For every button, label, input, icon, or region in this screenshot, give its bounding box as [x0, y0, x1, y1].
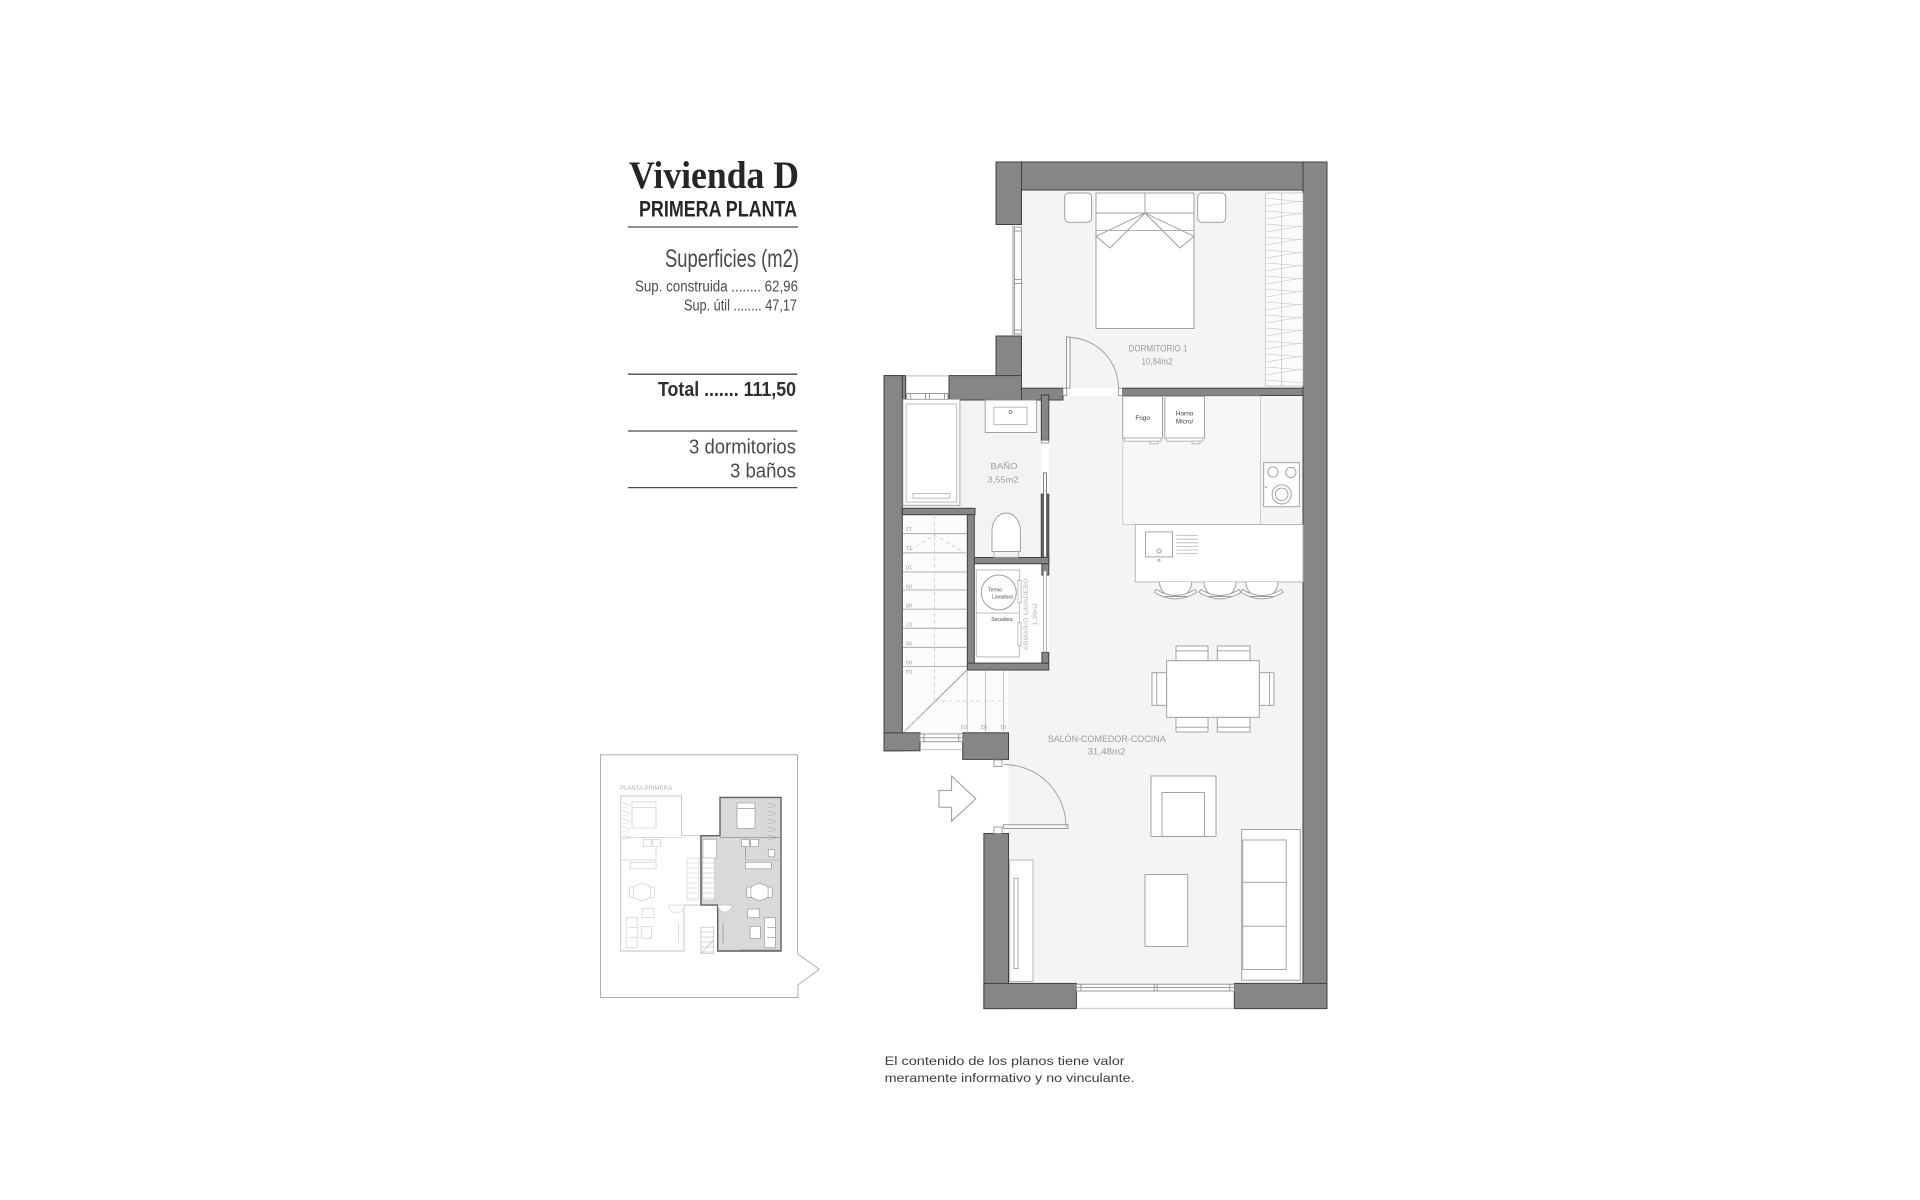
- svg-text:31,48m2: 31,48m2: [1088, 747, 1126, 757]
- svg-text:3 dormitorios: 3 dormitorios: [689, 437, 796, 459]
- svg-text:10: 10: [906, 564, 912, 570]
- svg-text:BAÑO: BAÑO: [991, 462, 1018, 471]
- svg-text:Total ....... 111,50: Total ....... 111,50: [658, 379, 796, 401]
- svg-text:01: 01: [1000, 723, 1006, 729]
- svg-text:04: 04: [906, 668, 912, 674]
- svg-text:Superficies (m2): Superficies (m2): [665, 245, 799, 273]
- svg-text:09: 09: [906, 583, 912, 589]
- svg-text:06: 06: [906, 640, 912, 646]
- svg-text:Termo: Termo: [988, 588, 1002, 594]
- svg-text:3,55m2: 3,55m2: [988, 476, 1020, 485]
- svg-text:10,84m2: 10,84m2: [1142, 357, 1173, 367]
- svg-text:12: 12: [906, 525, 912, 531]
- svg-text:El contenido de los planos tie: El contenido de los planos tiene valor: [885, 1054, 1125, 1068]
- svg-text:08: 08: [906, 602, 912, 608]
- svg-text:03: 03: [961, 723, 967, 729]
- svg-text:SALÓN-COMEDOR-COCINA: SALÓN-COMEDOR-COCINA: [1048, 734, 1167, 744]
- svg-text:07: 07: [906, 621, 912, 627]
- svg-text:Vivienda D: Vivienda D: [629, 154, 799, 197]
- svg-text:1,30m2: 1,30m2: [1032, 603, 1039, 626]
- svg-text:Sup. útil ........ 47,17: Sup. útil ........ 47,17: [684, 298, 797, 315]
- svg-text:Lavadora: Lavadora: [992, 595, 1013, 601]
- svg-text:3 baños: 3 baños: [730, 461, 796, 483]
- svg-text:meramente informativo y no vin: meramente informativo y no vinculante.: [885, 1071, 1135, 1085]
- svg-text:PLANTA PRIMERA: PLANTA PRIMERA: [620, 785, 673, 792]
- svg-text:ARMARIO LAVADERO: ARMARIO LAVADERO: [1023, 578, 1030, 649]
- svg-text:PRIMERA PLANTA: PRIMERA PLANTA: [639, 197, 797, 222]
- svg-text:11: 11: [906, 544, 912, 550]
- svg-text:Horno: Horno: [1176, 411, 1194, 418]
- svg-text:Secadora: Secadora: [991, 617, 1013, 623]
- svg-text:Micro/: Micro/: [1176, 419, 1194, 426]
- svg-text:05: 05: [906, 659, 912, 665]
- svg-text:Sup. construida ........ 62,96: Sup. construida ........ 62,96: [635, 279, 798, 296]
- svg-text:02: 02: [981, 723, 987, 729]
- svg-text:Frigo: Frigo: [1135, 415, 1150, 422]
- svg-text:DORMITORIO 1: DORMITORIO 1: [1129, 344, 1188, 354]
